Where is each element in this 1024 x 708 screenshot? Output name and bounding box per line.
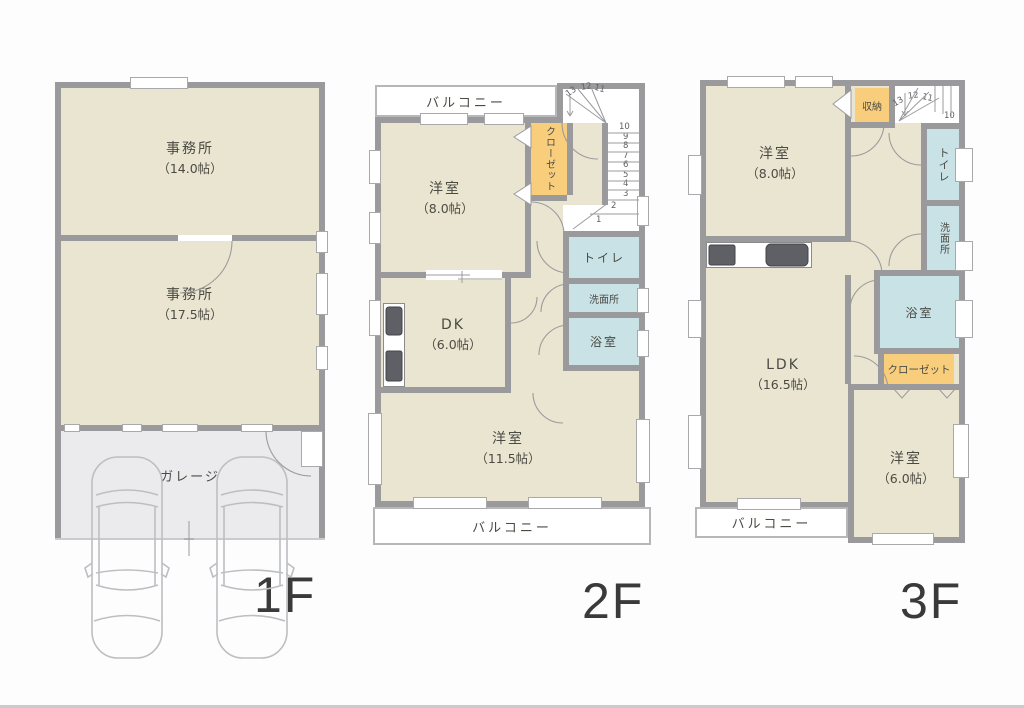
folding-door-marks-3f (893, 388, 956, 398)
door-arcs-2f (511, 123, 598, 423)
staircase-treads-3f (899, 86, 951, 121)
car-outline (210, 457, 294, 658)
kitchen-sink-stove-2f (386, 307, 402, 381)
sliding-door-2f (426, 271, 502, 283)
floorplan-canvas: 事務所 （14.0帖） 事務所 （17.5帖） ガレージ 1F クローゼット ト… (0, 0, 1024, 708)
staircase-treads-2f (566, 87, 639, 229)
storage-door-mark-3f (833, 90, 851, 118)
door-arcs-3f (848, 123, 921, 390)
door-arcs-1f (180, 241, 311, 556)
lineart-overlay (0, 0, 1024, 708)
car-outline (85, 457, 169, 658)
kitchen-sink-stove-3f (709, 244, 808, 266)
closet-door-marks-2f (514, 126, 531, 205)
